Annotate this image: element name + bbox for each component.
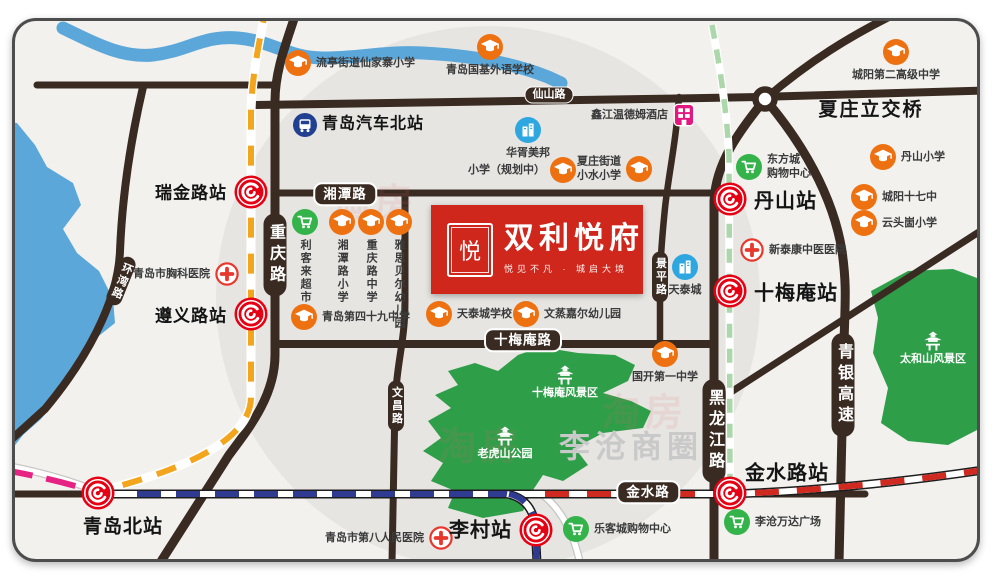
map-screenshot: 淘房淘房淘房夏庄立交桥李沧商圈仙山路湘潭路十梅庵路金水路重庆路黑龙江路青银高速景…: [0, 0, 1000, 585]
graduation-cap-icon: [870, 144, 896, 170]
graduation-cap-icon: [477, 34, 503, 60]
xiangtan-road-primary-label: 湘潭路小学: [335, 239, 349, 304]
qingyin-expressway-badge: 青银高速: [832, 333, 855, 437]
zunyi-road-station-label: 遵义路站: [155, 302, 227, 327]
graduation-cap-icon: [291, 304, 317, 330]
liuting-xianjiazhai-primary-label: 流亭街道仙家寨小学: [316, 56, 415, 70]
likelai-supermarket-label: 利客来超市: [298, 239, 312, 304]
planned-primary-label: 小学（规划中）: [468, 163, 545, 177]
metro-logo-icon: [519, 513, 553, 547]
shimeian-scenic-area-label: 十梅庵风景区: [532, 384, 598, 400]
lekecheng-mall-label: 乐客城购物中心: [594, 522, 671, 536]
graduation-cap-icon: [626, 156, 652, 182]
chongqing-road-badge: 重庆路: [264, 214, 287, 297]
wenchang-road-badge: 文昌路: [388, 381, 404, 432]
chongqing-road-middle-label: 重庆路中学: [364, 239, 378, 304]
pagoda-icon: [492, 427, 518, 446]
xiangtan-road-badge: 湘潭路: [313, 182, 377, 206]
project-title: 双利悦府: [504, 224, 644, 254]
shopping-cart-icon: [563, 516, 589, 542]
chengyang-no2-high-school-label: 城阳第二高级中学: [852, 68, 940, 82]
shopping-cart-icon: [724, 509, 750, 535]
graduation-cap-icon: [550, 157, 576, 183]
yasi-beier-kindergarten-label: 雅思贝尔幼儿园: [392, 239, 406, 330]
shopping-cart-icon: [292, 209, 318, 235]
guokai-no1-middle-label: 国开第一中学: [632, 370, 698, 384]
qingdao-no8-peoples-hospital-label: 青岛市第八人民医院: [325, 531, 424, 545]
hospital-cross-icon: [215, 262, 239, 286]
huaxu-meibang-label: 华胥美邦: [506, 146, 550, 160]
dongfangcheng-mall-label: 东方城 购物中心: [767, 153, 811, 182]
metro-logo-icon: [713, 274, 747, 308]
qingdao-chest-hospital-label: 青岛市胸科医院: [133, 267, 210, 281]
xintaikang-tcm-hospital-label: 新泰康中医医院: [769, 243, 846, 257]
yuntougu-primary-label: 云头崮小学: [882, 216, 937, 230]
guoji-foreign-language-school-label: 青岛国基外语学校: [446, 63, 534, 77]
xiazhuang-interchange-label: 夏庄立交桥: [818, 95, 923, 122]
graduation-cap-icon: [652, 341, 678, 367]
xianshan-road-badge: 仙山路: [525, 87, 574, 104]
shopping-cart-icon: [736, 154, 762, 180]
project-seal: 悦: [447, 223, 493, 277]
taiheshan-scenic-area-label: 太和山风景区: [900, 350, 966, 366]
graduation-cap-icon: [426, 301, 452, 327]
licang-business-circle-label: 李沧商圈: [559, 422, 703, 467]
project-logo-card: 悦 双利悦府 悦见不凡 · 城启大境: [431, 205, 643, 294]
project-subtitle: 悦见不凡 · 城启大境: [504, 262, 644, 275]
graduation-cap-icon: [386, 209, 412, 235]
xiaoshui-primary-label: 夏庄街道 小水小学: [577, 155, 621, 184]
chengyang-no17-middle-label: 城阳十七中: [882, 190, 937, 204]
heilongjiang-road-badge: 黑龙江路: [703, 379, 726, 483]
graduation-cap-icon: [851, 184, 877, 210]
bus-icon: [293, 113, 317, 137]
metro-logo-icon: [234, 175, 268, 209]
wenzheng-jiaer-kindergarten-label: 文蒸嘉尔幼儿园: [544, 307, 621, 321]
xinjiang-wyndham-hotel-label: 鑫江温德姆酒店: [591, 108, 668, 122]
qingdao-bus-north-station-label: 青岛汽车北站: [322, 115, 424, 136]
seal-character: 悦: [459, 234, 481, 266]
jingping-road-badge: 景平路: [652, 252, 668, 303]
map-canvas: 淘房淘房淘房夏庄立交桥李沧商圈仙山路湘潭路十梅庵路金水路重庆路黑龙江路青银高速景…: [12, 18, 980, 562]
graduation-cap-icon: [329, 209, 355, 235]
laohushan-park-label: 老虎山公园: [478, 445, 533, 461]
metro-logo-icon: [81, 476, 115, 510]
jinshui-road-badge: 金水路: [616, 480, 680, 504]
danshan-primary-label: 丹山小学: [901, 150, 945, 164]
hotel-icon: [674, 104, 695, 127]
qingdao-north-station-label: 青岛北站: [83, 512, 163, 539]
shimeian-road-badge: 十梅庵路: [484, 328, 562, 352]
graduation-cap-icon: [513, 301, 539, 327]
jinshui-road-station-label: 金水路站: [745, 457, 829, 486]
building-icon: [515, 117, 541, 143]
hospital-cross-icon: [740, 238, 764, 262]
licun-station-label: 李村站: [449, 514, 512, 543]
ruijin-road-station-label: 瑞金路站: [155, 179, 227, 204]
danshan-station-label: 丹山站: [754, 185, 817, 214]
tiantaicheng-school-label: 天泰城学校: [457, 307, 512, 321]
metro-logo-icon: [234, 297, 268, 331]
graduation-cap-icon: [285, 50, 311, 76]
shimeian-station-label: 十梅庵站: [754, 277, 838, 306]
pagoda-icon: [920, 332, 946, 351]
building-icon: [672, 254, 698, 280]
metro-logo-icon: [713, 182, 747, 216]
graduation-cap-icon: [851, 210, 877, 236]
graduation-cap-icon: [883, 39, 909, 65]
tiantaicheng-label: 天泰城: [669, 283, 702, 297]
project-logo-text: 双利悦府 悦见不凡 · 城启大境: [504, 224, 644, 275]
map-frame: 淘房淘房淘房夏庄立交桥李沧商圈仙山路湘潭路十梅庵路金水路重庆路黑龙江路青银高速景…: [12, 18, 980, 562]
pagoda-icon: [552, 366, 578, 385]
metro-logo-icon: [713, 476, 747, 510]
graduation-cap-icon: [358, 209, 384, 235]
licang-wanda-plaza-label: 李沧万达广场: [755, 515, 821, 529]
